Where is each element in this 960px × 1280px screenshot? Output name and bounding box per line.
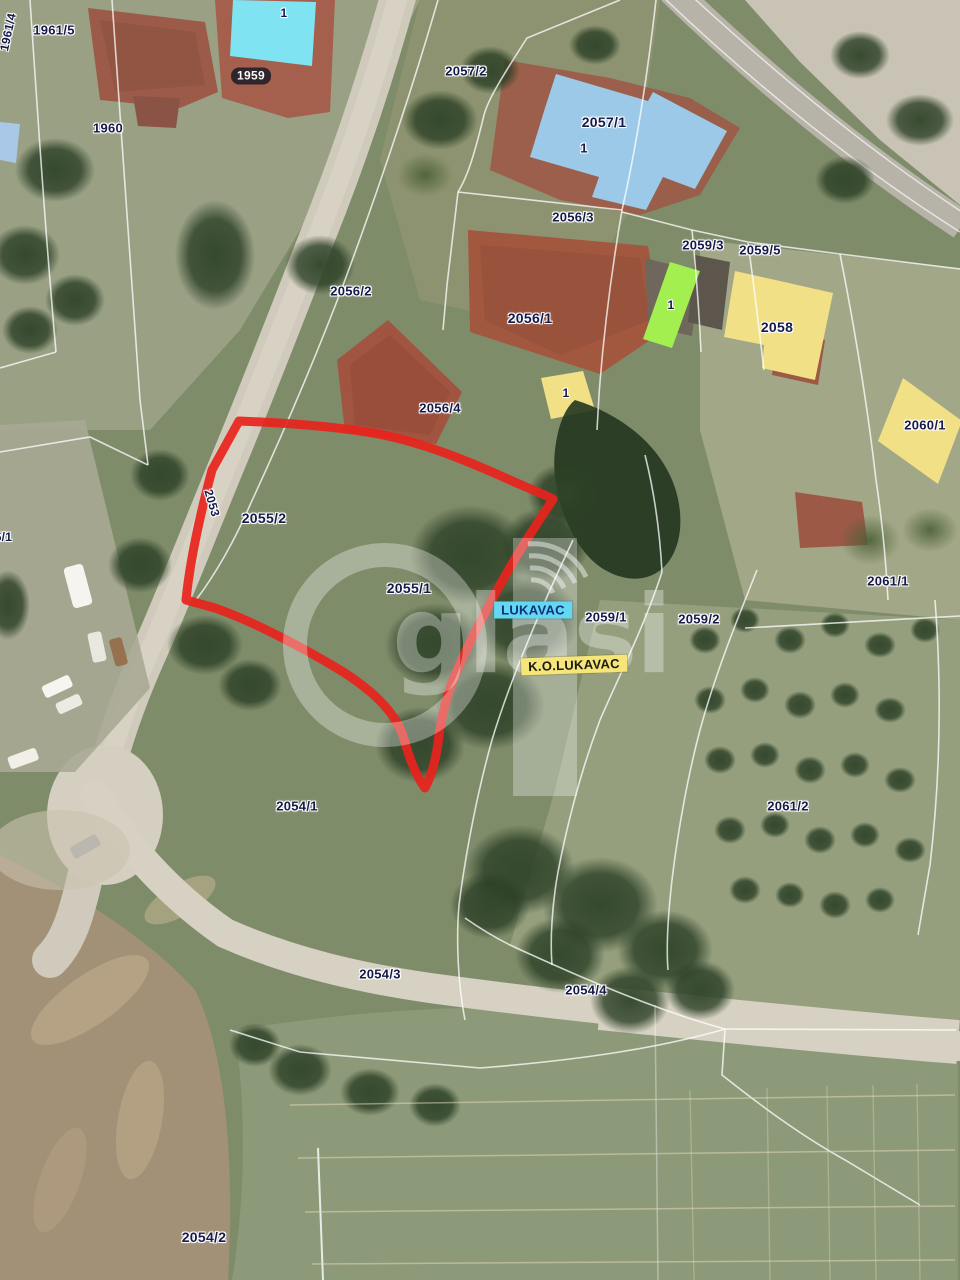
watermark-bar	[513, 538, 577, 796]
building-pool-cyan	[230, 0, 316, 66]
satellite-map-image: glasi	[0, 0, 960, 1280]
cadastral-map-viewport[interactable]: glasi 1961/41961/519602057/22057/1112056…	[0, 0, 960, 1280]
